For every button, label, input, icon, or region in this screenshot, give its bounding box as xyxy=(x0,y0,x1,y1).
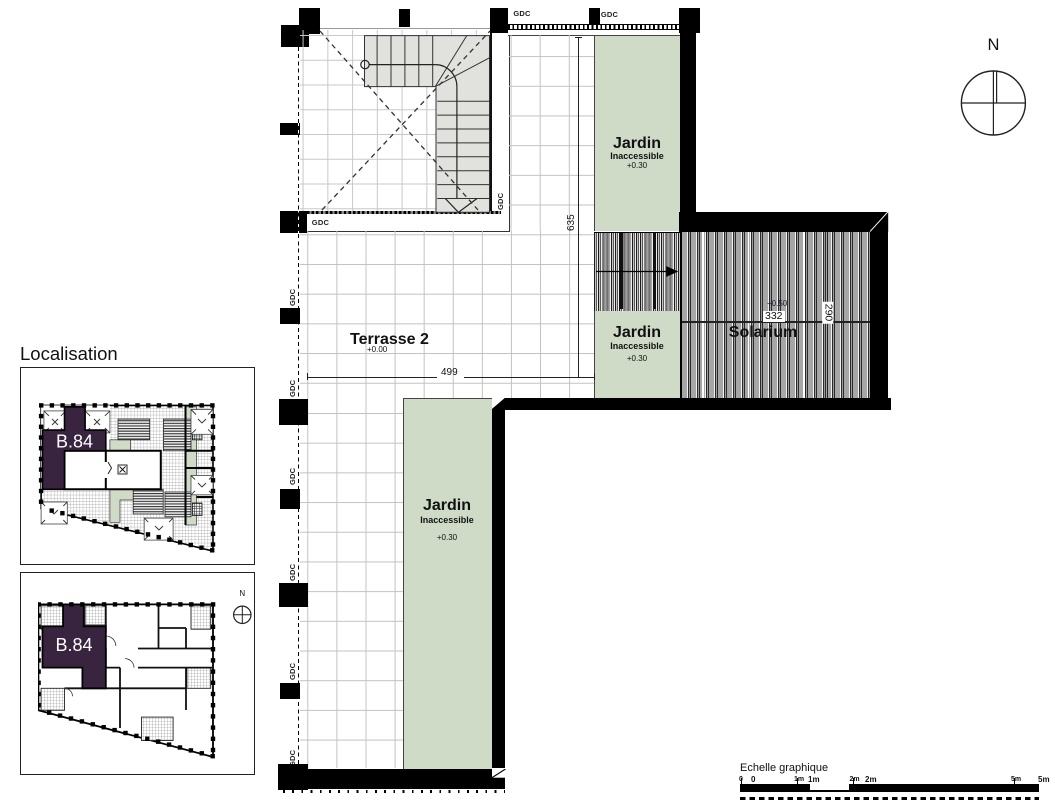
svg-text:B.84: B.84 xyxy=(56,431,93,451)
svg-text:B.84: B.84 xyxy=(56,635,93,655)
svg-text:N: N xyxy=(987,36,999,54)
svg-text:N: N xyxy=(239,589,245,598)
